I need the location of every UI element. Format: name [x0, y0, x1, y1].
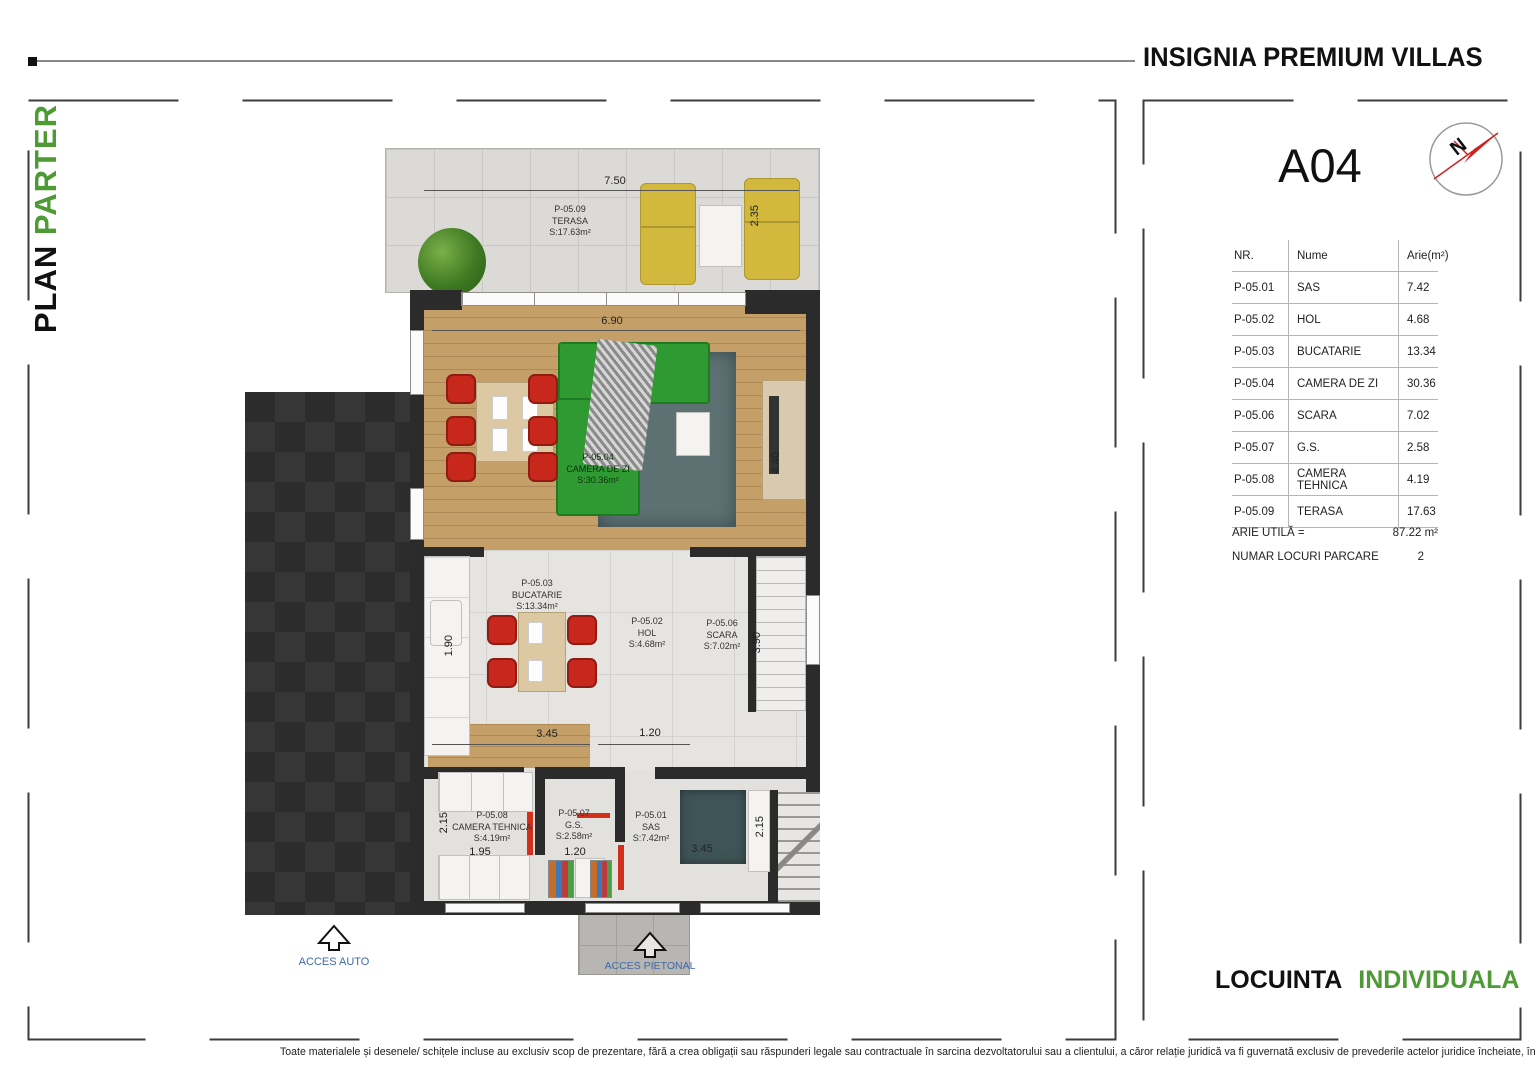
room-name: CAMERA DE ZI — [556, 464, 640, 476]
room-name: BUCATARIE — [492, 590, 582, 602]
room-id: P-05.03 — [492, 578, 582, 590]
brand-title: INSIGNIA PREMIUM VILLAS — [1143, 42, 1483, 73]
cell-nr: P-05.07 — [1232, 442, 1288, 454]
dwelling-type-word: INDIVIDUALA — [1358, 966, 1519, 994]
table-row: P-05.09 TERASA 17.63 — [1232, 496, 1438, 528]
wall-bottom-row-2 — [545, 767, 615, 779]
plate — [492, 428, 508, 452]
kitchen-chair — [487, 615, 517, 645]
cell-name: CAMERA TEHNICA — [1288, 464, 1398, 495]
cell-area: 7.42 — [1398, 272, 1438, 303]
window-left — [410, 330, 424, 395]
table-row: P-05.06 SCARA 7.02 — [1232, 400, 1438, 432]
table-row: P-05.01 SAS 7.42 — [1232, 272, 1438, 304]
cell-nr: P-05.04 — [1232, 378, 1288, 390]
cell-nr: P-05.03 — [1232, 346, 1288, 358]
cell-name: HOL — [1288, 304, 1398, 335]
room-name: TERASA — [525, 216, 615, 228]
plate — [528, 660, 543, 682]
room-label-bucatarie: P-05.03 BUCATARIE S:13.34m² — [492, 578, 582, 613]
area-table: NR. Nume Arie(m²) P-05.01 SAS 7.42 P-05.… — [1232, 240, 1438, 528]
room-label-terasa: P-05.09 TERASA S:17.63m² — [525, 204, 615, 239]
dining-chair — [528, 452, 558, 482]
dim-hall-width: 1.20 — [628, 727, 672, 739]
dim-stair-depth: 3.90 — [751, 632, 763, 653]
sheet: INSIGNIA PREMIUM VILLAS PLAN PARTER — [0, 0, 1536, 1086]
room-area: S:7.02m² — [686, 641, 758, 653]
col-header-area: Arie(m²) — [1398, 240, 1438, 271]
room-area: S:17.63m² — [525, 227, 615, 239]
cell-area: 13.34 — [1398, 336, 1438, 367]
access-pietonal-arrow-icon — [632, 930, 668, 960]
dim-line — [424, 190, 799, 191]
plan-word: PLAN — [28, 245, 63, 333]
room-area: S:13.34m² — [492, 601, 582, 613]
parking-label: NUMAR LOCURI PARCARE — [1232, 551, 1379, 563]
plan-floor-label: PLAN PARTER — [28, 104, 64, 333]
kitchen-chair — [567, 615, 597, 645]
col-header-nr: NR. — [1232, 250, 1288, 262]
cell-name: SAS — [1288, 272, 1398, 303]
room-name: SAS — [620, 822, 682, 834]
table-row: P-05.07 G.S. 2.58 — [1232, 432, 1438, 464]
room-label-camera-tehnica: P-05.08 CAMERA TEHNICA S:4.19m² — [444, 810, 540, 845]
cell-area: 2.58 — [1398, 432, 1438, 463]
room-area: S:30.36m² — [556, 475, 640, 487]
unit-number: A04 — [1250, 138, 1390, 193]
dim-terrace-width: 7.50 — [593, 175, 637, 187]
dim-terrace-depth: 2.35 — [749, 205, 761, 226]
cell-area: 4.68 — [1398, 304, 1438, 335]
sun-lounger — [744, 178, 800, 280]
room-id: P-05.02 — [612, 616, 682, 628]
cell-name: CAMERA DE ZI — [1288, 368, 1398, 399]
dwelling-word: LOCUINTA — [1215, 966, 1342, 994]
dwelling-type-label: LOCUINTAINDIVIDUALA — [1215, 966, 1519, 995]
table-row: P-05.04 CAMERA DE ZI 30.36 — [1232, 368, 1438, 400]
title-line-end-square — [28, 57, 37, 66]
room-label-hol: P-05.02 HOL S:4.68m² — [612, 616, 682, 651]
cell-area: 7.02 — [1398, 400, 1438, 431]
plate — [528, 622, 543, 644]
compass-icon: N — [1428, 121, 1504, 197]
dining-chair — [446, 452, 476, 482]
total-area-value: 87.22 m² — [1393, 527, 1438, 539]
cell-name: BUCATARIE — [1288, 336, 1398, 367]
total-area-row: ARIE UTILĂ = 87.22 m² — [1232, 527, 1438, 539]
stairs-hatch — [778, 792, 820, 902]
room-label-camera-de-zi: P-05.04 CAMERA DE ZI S:30.36m² — [556, 452, 640, 487]
cell-area: 4.19 — [1398, 464, 1438, 495]
kitchen-chair — [487, 658, 517, 688]
dining-chair — [528, 416, 558, 446]
dim-line — [432, 330, 800, 331]
cell-area: 30.36 — [1398, 368, 1438, 399]
table-header-row: NR. Nume Arie(m²) — [1232, 240, 1438, 272]
room-id: P-05.07 — [544, 808, 604, 820]
room-label-sas: P-05.01 SAS S:7.42m² — [620, 810, 682, 845]
dim-kitchen-width: 3.45 — [525, 728, 569, 740]
room-name: G.S. — [544, 820, 604, 832]
access-pietonal-label: ACCES PIETONAL — [595, 960, 705, 972]
dim-kitchen-depth: 1.90 — [443, 635, 455, 656]
cell-name: G.S. — [1288, 432, 1398, 463]
parking-row: NUMAR LOCURI PARCARE 2 — [1232, 551, 1438, 563]
staircase — [756, 556, 806, 711]
kitchen-chair — [567, 658, 597, 688]
room-area: S:4.19m² — [444, 833, 540, 845]
coffee-table — [676, 412, 710, 456]
room-id: P-05.06 — [686, 618, 758, 630]
window-bottom-right — [700, 903, 790, 913]
dim-living-width: 6.90 — [590, 315, 634, 327]
cell-nr: P-05.08 — [1232, 474, 1288, 486]
window-top — [461, 292, 746, 306]
dim-living-depth: 4.40 — [770, 452, 782, 473]
room-id: P-05.04 — [556, 452, 640, 464]
col-header-name: Nume — [1288, 240, 1398, 271]
room-label-gs: P-05.07 G.S. S:2.58m² — [544, 808, 604, 843]
dim-line — [598, 744, 690, 745]
room-area: S:4.68m² — [612, 639, 682, 651]
cell-nr: P-05.06 — [1232, 410, 1288, 422]
plate — [492, 396, 508, 420]
parking-value: 2 — [1418, 551, 1438, 563]
dim-sas-depth: 2.15 — [754, 816, 766, 837]
tehnica-appliances — [438, 772, 533, 812]
door-bottom-entrance — [585, 903, 680, 913]
dining-chair — [528, 374, 558, 404]
cell-name: TERASA — [1288, 496, 1398, 527]
dining-chair — [446, 416, 476, 446]
cell-nr: P-05.09 — [1232, 506, 1288, 518]
room-id: P-05.08 — [444, 810, 540, 822]
dim-sas-width: 3.45 — [680, 843, 724, 855]
room-id: P-05.09 — [525, 204, 615, 216]
wall-top-left — [410, 290, 462, 310]
sun-lounger — [640, 183, 696, 285]
dining-chair — [446, 374, 476, 404]
cell-nr: P-05.02 — [1232, 314, 1288, 326]
dim-tehnica-depth: 2.15 — [438, 812, 450, 833]
wall-bottom-row-3 — [655, 767, 820, 779]
room-name: HOL — [612, 628, 682, 640]
table-row: P-05.08 CAMERA TEHNICA 4.19 — [1232, 464, 1438, 496]
table-row: P-05.02 HOL 4.68 — [1232, 304, 1438, 336]
title-rule-line — [37, 60, 1135, 62]
red-wall-accent — [618, 845, 624, 890]
room-label-scara: P-05.06 SCARA S:7.02m² — [686, 618, 758, 653]
dim-line — [432, 744, 590, 745]
wall-top-right — [745, 290, 820, 314]
tehnica-cabinets — [438, 855, 530, 900]
laundry-basket — [590, 860, 612, 898]
room-area: S:2.58m² — [544, 831, 604, 843]
terrace-table — [699, 205, 742, 267]
window-right — [806, 595, 820, 665]
washing-machine — [548, 860, 574, 898]
room-id: P-05.01 — [620, 810, 682, 822]
cell-area: 17.63 — [1398, 496, 1438, 527]
room-name: CAMERA TEHNICA — [444, 822, 540, 834]
total-area-label: ARIE UTILĂ = — [1232, 527, 1305, 539]
plant-icon — [418, 228, 486, 296]
access-auto-label: ACCES AUTO — [279, 956, 389, 968]
cell-name: SCARA — [1288, 400, 1398, 431]
door-left-entrance — [410, 488, 424, 540]
room-name: SCARA — [686, 630, 758, 642]
cell-nr: P-05.01 — [1232, 282, 1288, 294]
room-area: S:7.42m² — [620, 833, 682, 845]
legal-disclaimer: Toate materialele și desenele/ schițele … — [280, 1046, 1480, 1058]
floor-word: PARTER — [28, 104, 63, 235]
driveway-area — [245, 392, 420, 915]
dim-gs-width: 1.20 — [553, 846, 597, 858]
access-auto-arrow-icon — [316, 923, 352, 953]
table-row: P-05.03 BUCATARIE 13.34 — [1232, 336, 1438, 368]
window-bottom-left — [445, 903, 525, 913]
dim-tehnica-width: 1.95 — [458, 846, 502, 858]
